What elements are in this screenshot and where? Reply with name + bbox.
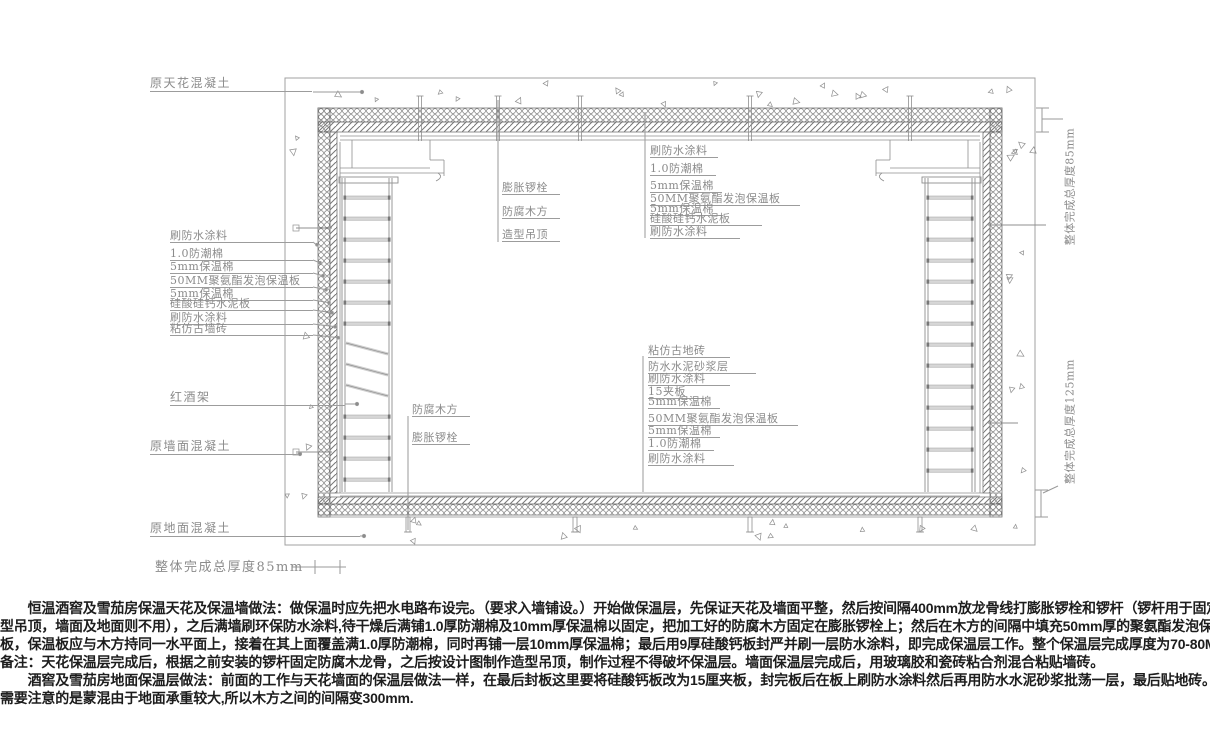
label-wall-layer-8: 粘仿古墙砖 [170,322,313,336]
label-ceiling-total-thickness: 整体完成总厚度85mm [1064,122,1077,252]
note-line: 备注：天花保温层完成后，根据之前安装的锣杆固定防腐木龙骨，之后按设计图制作造型吊… [0,653,1210,671]
label-wine-rack: 红酒架 [170,390,345,406]
label-wall-layer-3: 5mm保温棉 [170,260,313,274]
label-floor-layer-1: 粘仿古地砖 [648,344,730,358]
specification-notes: 恒温酒窖及雪茄房保温天花及保温墙做法：做保温时应先把水电路布设完。（要求入墙铺设… [0,599,1210,707]
note-line: 型吊顶，墙面及地面则不用），之后满墙刷环保防水涂料,待干燥后满铺1.0厚防潮棉及… [0,617,1210,635]
label-ceiling-layer-6: 硅酸硅钙水泥板 [650,212,762,226]
note-line: 酒窖及雪茄房地面保温层做法：前面的工作与天花墙面的保温层做法一样，在最后封板这里… [0,671,1210,689]
label-anchor-bolt: 膨胀锣栓 [502,181,560,195]
floor-assembly [318,493,1002,517]
leader-lines [296,90,645,537]
label-wall-layer-2: 1.0防潮棉 [170,247,313,261]
label-shaped-ceiling: 造型吊顶 [502,228,560,242]
label-wall-concrete: 原墙面混凝土 [150,439,296,455]
wine-rack-right [922,177,981,492]
label-wood-batten: 防腐木方 [502,205,560,219]
label-floor-total-thickness: 整体完成总厚度125mm [1064,352,1077,492]
label-floor-layer-7: 5mm保温棉 [648,424,720,438]
drawing-sheet: 原天花混凝土 刷防水涂料 1.0防潮棉 5mm保温棉 50MM聚氨酯发泡保温板 … [0,0,1210,750]
note-line: 需要注意的是蒙混由于地面承重较大,所以木方之间的间隔变300mm. [0,689,1210,707]
label-wall-layer-4: 50MM聚氨酯发泡保温板 [170,274,313,288]
label-floor-layer-9: 刷防水涂料 [648,452,734,466]
label-floor-concrete: 原地面混凝土 [150,521,360,537]
label-wall-total-thickness: 整体完成总厚度85mm [155,560,304,575]
label-floor-layer-3: 刷防水涂料 [648,372,730,386]
label-ceiling-layer-7: 刷防水涂料 [650,225,740,239]
right-wall-assembly [980,108,1002,517]
label-floor-anchor-bolt: 膨胀锣栓 [412,431,470,445]
label-floor-layer-5: 5mm保温棉 [648,395,720,409]
label-floor-wood-batten: 防腐木方 [412,403,470,417]
label-wall-layer-1: 刷防水涂料 [170,229,313,243]
label-ceiling-layer-2: 1.0防潮棉 [650,162,716,176]
label-ceiling-layer-3: 5mm保温棉 [650,179,722,193]
floor-anchor-bolts [404,517,924,532]
label-ceiling-layer-1: 刷防水涂料 [650,144,718,158]
note-line: 恒温酒窖及雪茄房保温天花及保温墙做法：做保温时应先把水电路布设完。（要求入墙铺设… [0,599,1210,617]
label-wall-layer-6: 硅酸硅钙水泥板 [170,297,313,311]
wine-rack-left [339,177,398,492]
label-floor-layer-8: 1.0防潮棉 [648,437,714,451]
note-line: 板，保温板应与木方持同一水平面上，接着在其上面覆盖满1.0厚防潮棉，同时再铺一层… [0,635,1210,653]
label-ceiling-concrete: 原天花混凝土 [150,76,312,92]
